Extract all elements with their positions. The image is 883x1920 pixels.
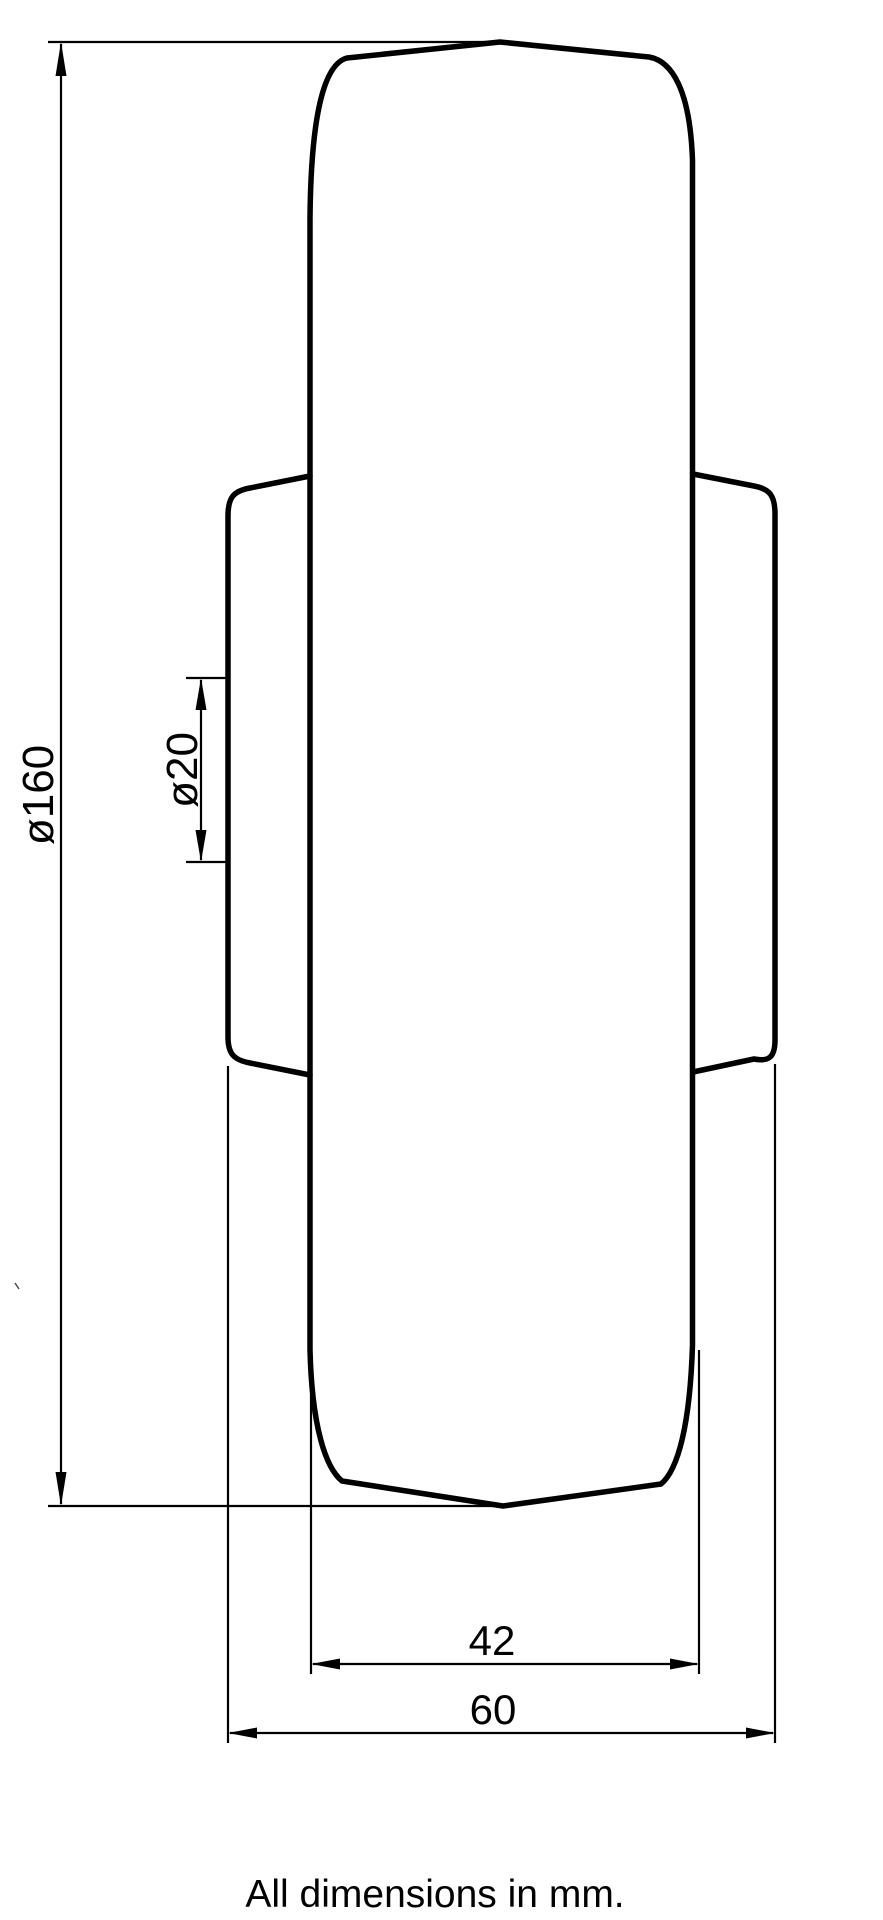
- arrow-down-icon: [196, 830, 207, 862]
- footer-note: All dimensions in mm.: [245, 1873, 624, 1916]
- arrow-up-icon: [196, 678, 207, 710]
- arrow-left-icon: [311, 1659, 340, 1670]
- arrow-left-icon: [228, 1728, 257, 1739]
- tread-outline: [310, 42, 693, 1506]
- dimension-wheel-diameter: ø160: [14, 42, 507, 1506]
- dimension-label-hub-width: 60: [470, 1686, 517, 1733]
- hub-flange-right-outline: [693, 474, 775, 1072]
- dimension-bore-diameter: ø20: [158, 678, 228, 862]
- dimension-label-wheel-diameter: ø160: [14, 745, 63, 845]
- stray-mark: [15, 1283, 19, 1289]
- drawing-page: ø160 ø20 42 60: [0, 0, 883, 1920]
- hub-flange-left-outline: [228, 476, 310, 1075]
- dimension-tread-width: 42: [311, 1350, 699, 1674]
- arrow-right-icon: [746, 1728, 775, 1739]
- arrow-down-icon: [56, 1472, 67, 1506]
- technical-drawing-canvas: ø160 ø20 42 60: [0, 0, 883, 1920]
- dimension-label-tread-width: 42: [469, 1617, 516, 1664]
- arrow-up-icon: [56, 42, 67, 76]
- arrow-right-icon: [670, 1659, 699, 1670]
- wheel-profile: [228, 42, 775, 1506]
- dimension-label-bore-diameter: ø20: [158, 732, 207, 808]
